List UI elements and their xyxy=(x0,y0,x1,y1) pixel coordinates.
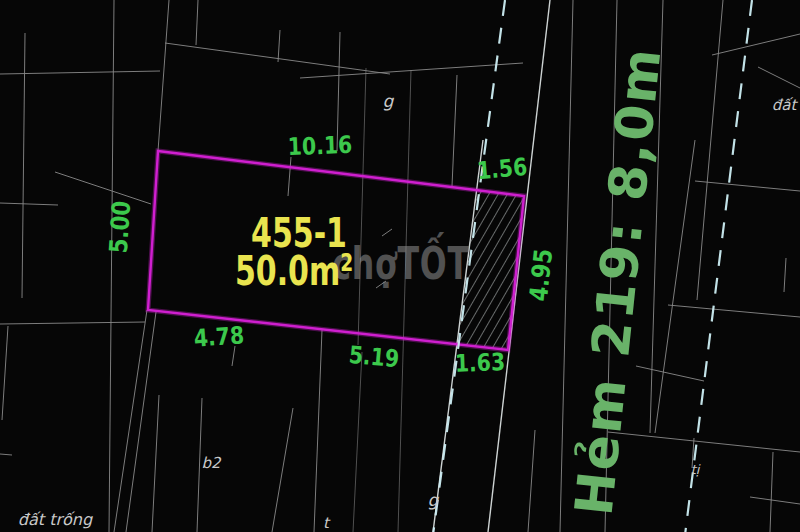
plot-area-exponent: 2 xyxy=(340,248,353,277)
parcel-line xyxy=(655,140,695,433)
plot-area-label: 50.0m2 xyxy=(235,251,353,291)
dimension-label-5.00: 5.00 xyxy=(106,200,135,254)
annotation-label-1: đất xyxy=(772,98,797,113)
parcel-line xyxy=(196,0,198,45)
dimension-label-5.19: 5.19 xyxy=(348,343,400,371)
parcel-line xyxy=(55,172,151,204)
annotation-label-5: t xyxy=(323,516,329,531)
parcel-line xyxy=(398,70,411,532)
parcel-line xyxy=(353,352,362,532)
parcel-line xyxy=(608,432,800,452)
parcel-line xyxy=(0,203,58,205)
annotation-label-4: g xyxy=(428,492,439,509)
planning-boundary-dashed-line xyxy=(685,0,752,532)
parcel-line xyxy=(272,408,293,532)
parcel-line xyxy=(770,452,773,532)
parcel-line xyxy=(695,181,800,191)
dimension-label-4.78: 4.78 xyxy=(193,323,245,350)
parcel-line xyxy=(712,34,800,55)
dimension-label-4.95: 4.95 xyxy=(526,248,556,303)
parcel-line xyxy=(668,305,800,317)
dimension-label-1.56: 1.56 xyxy=(476,155,528,183)
parcel-line xyxy=(0,322,145,324)
annotation-label-3: b2 xyxy=(201,456,220,471)
parcel-line xyxy=(158,0,169,151)
annotation-label-2: đất trống xyxy=(18,512,92,528)
parcel-line xyxy=(288,157,291,196)
parcel-line xyxy=(278,30,280,62)
parcel-line xyxy=(0,71,160,74)
cadastral-map: chợTỐT 455-1 50.0m2 Hẻm 219: 8,0m 10.161… xyxy=(0,0,800,532)
annotation-label-0: g xyxy=(383,93,394,110)
plot-area-value: 50.0m xyxy=(235,248,340,294)
parcel-line xyxy=(109,0,114,532)
dimension-label-1.63: 1.63 xyxy=(454,350,505,376)
parcel-line xyxy=(382,229,392,236)
parcel-line xyxy=(784,258,786,292)
dimension-label-10.16: 10.16 xyxy=(287,133,352,159)
parcel-line xyxy=(0,454,12,455)
parcel-line xyxy=(452,75,457,186)
parcel-line xyxy=(22,33,25,298)
parcel-line xyxy=(300,63,523,78)
parcel-line xyxy=(152,395,159,532)
parcel-line xyxy=(750,497,800,504)
parcel-line xyxy=(314,330,322,532)
parcel-line xyxy=(758,67,800,88)
annotation-label-6: tị xyxy=(691,463,700,476)
parcel-line xyxy=(358,68,366,345)
parcel-line xyxy=(636,366,704,381)
parcel-line xyxy=(2,326,8,420)
parcel-line xyxy=(528,430,535,532)
parcel-line xyxy=(165,43,390,74)
